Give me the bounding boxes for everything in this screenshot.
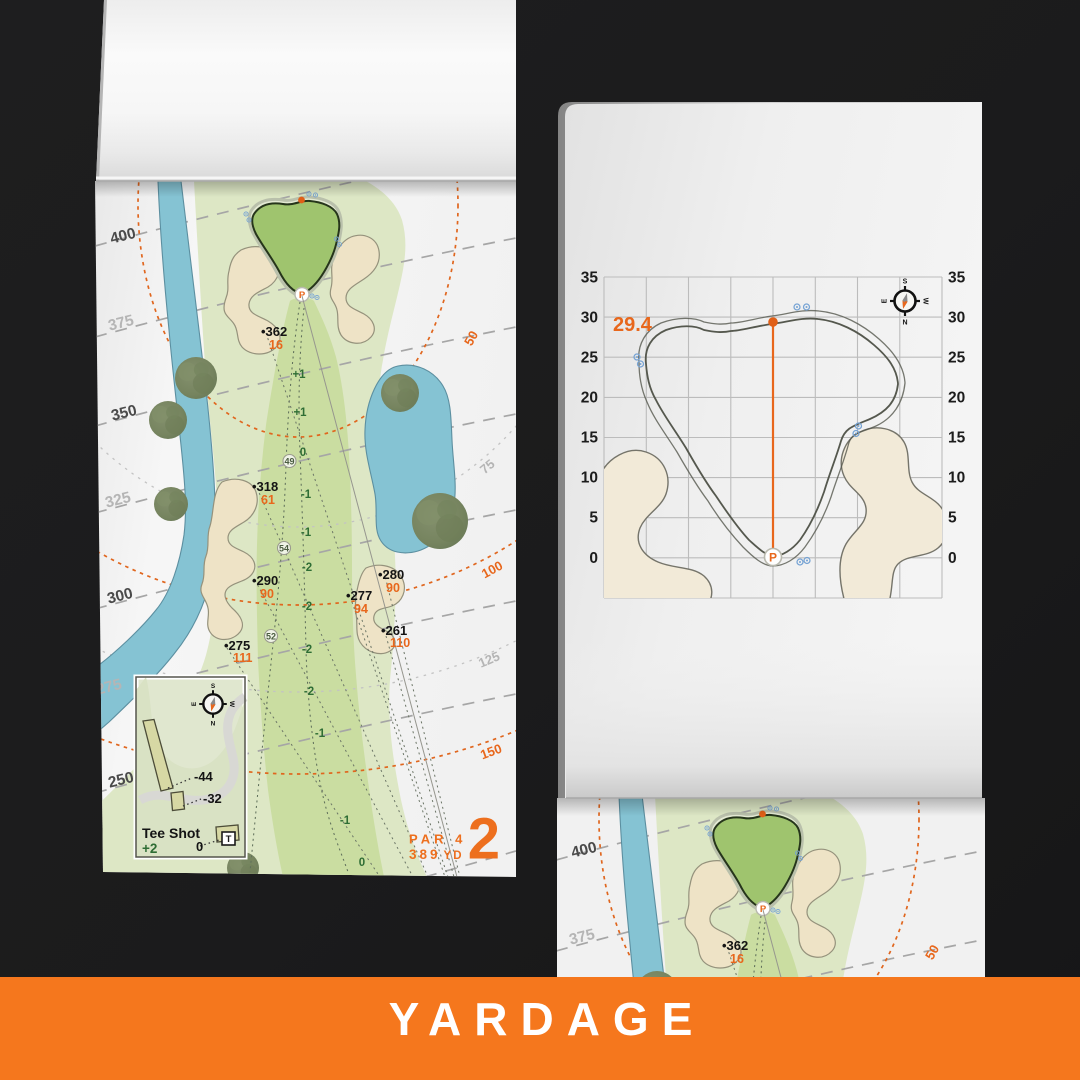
- svg-text:30: 30: [581, 310, 598, 327]
- svg-text:15: 15: [581, 430, 599, 447]
- svg-text:20: 20: [948, 390, 965, 407]
- svg-text:20: 20: [581, 390, 598, 407]
- svg-text:10: 10: [581, 470, 598, 487]
- svg-text:P: P: [769, 551, 777, 565]
- svg-text:29.4: 29.4: [613, 314, 653, 336]
- svg-text:30: 30: [948, 310, 965, 327]
- svg-text:YARDAGE: YARDAGE: [389, 993, 706, 1045]
- svg-text:5: 5: [948, 510, 957, 527]
- svg-text:35: 35: [948, 270, 966, 287]
- svg-text:0: 0: [589, 550, 598, 567]
- svg-text:25: 25: [948, 350, 966, 367]
- svg-text:0: 0: [948, 550, 957, 567]
- svg-text:5: 5: [589, 510, 598, 527]
- svg-text:35: 35: [581, 270, 599, 287]
- svg-text:10: 10: [948, 470, 965, 487]
- svg-text:15: 15: [948, 430, 966, 447]
- svg-text:25: 25: [581, 350, 599, 367]
